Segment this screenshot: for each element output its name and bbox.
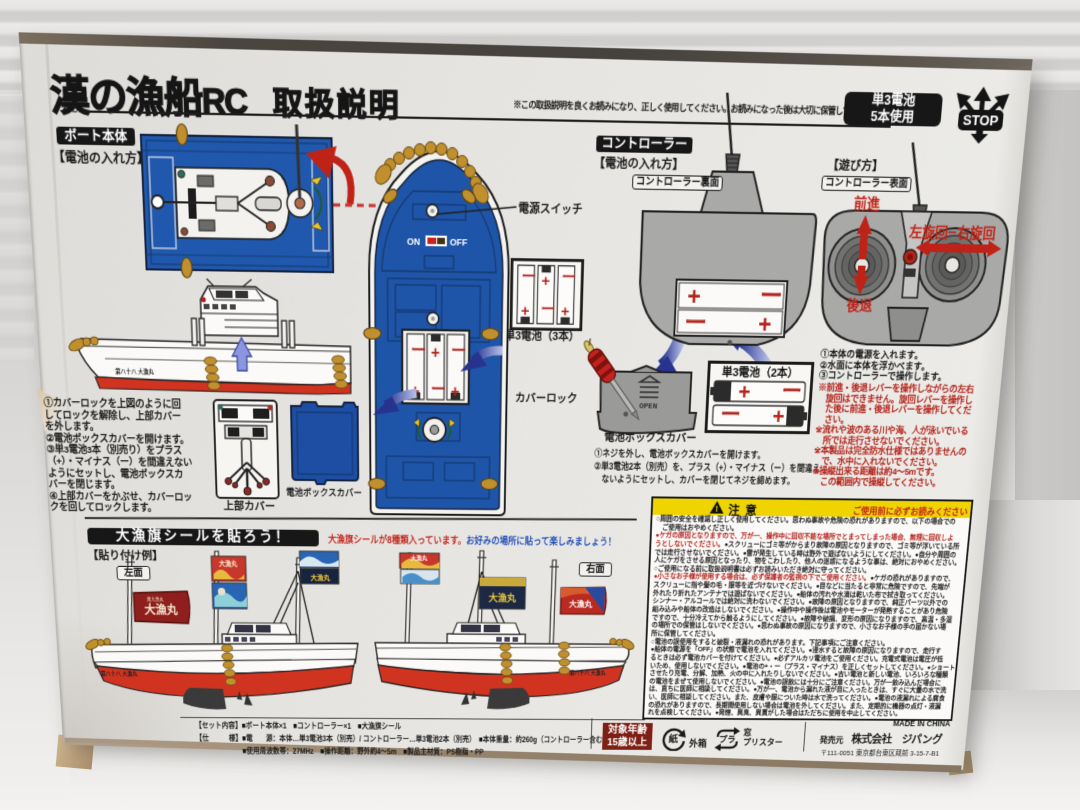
svg-text:左旋回: 左旋回 [908, 223, 949, 241]
svg-text:大漁丸: 大漁丸 [569, 599, 593, 609]
svg-text:ー: ー [684, 308, 708, 337]
svg-text:大漁丸: 大漁丸 [311, 573, 331, 582]
svg-text:大漁丸: 大漁丸 [219, 560, 238, 568]
svg-text:単3電池（2本）: 単3電池（2本） [721, 365, 799, 380]
svg-text:後退: 後退 [846, 297, 873, 314]
svg-text:第八十八 大漁丸: 第八十八 大漁丸 [100, 670, 139, 677]
svg-text:+: + [757, 310, 772, 338]
svg-text:ー: ー [720, 402, 742, 427]
svg-text:大漁丸: 大漁丸 [144, 602, 179, 616]
svg-text:前進: 前進 [853, 195, 880, 213]
svg-text:ー: ー [781, 379, 803, 404]
svg-text:OPEN: OPEN [639, 402, 657, 411]
svg-text:ー: ー [759, 281, 784, 310]
svg-text:大漁丸: 大漁丸 [411, 554, 428, 562]
svg-text:第八十八 大漁丸: 第八十八 大漁丸 [569, 669, 607, 676]
svg-text:+: + [772, 405, 785, 430]
svg-text:大漁丸: 大漁丸 [489, 592, 517, 604]
svg-text:萬大漁丸: 萬大漁丸 [147, 596, 164, 602]
svg-text:右旋回: 右旋回 [956, 224, 996, 242]
svg-text:+: + [687, 282, 702, 311]
